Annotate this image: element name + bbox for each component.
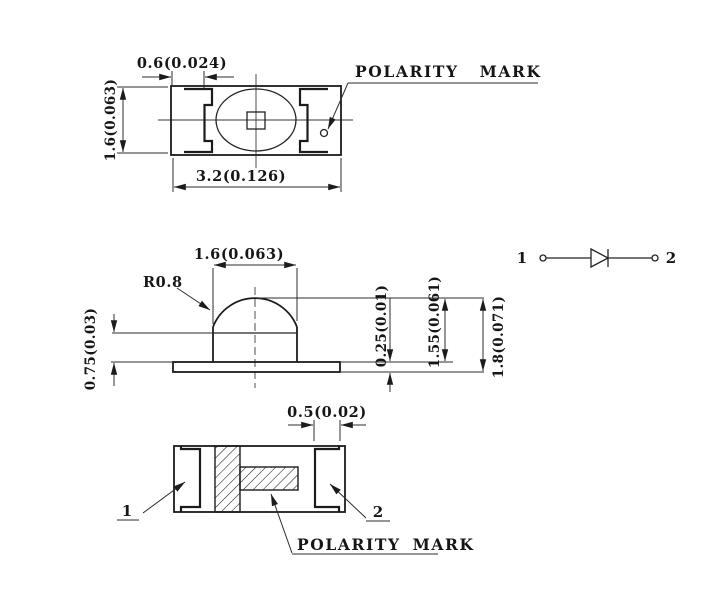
standoff-dimension: 0.75(0.03): [83, 308, 213, 391]
diode-triangle-icon: [591, 249, 608, 267]
standoff-dim-label: 0.75(0.03): [83, 308, 99, 391]
package-width-dimension: 3.2(0.126): [173, 158, 341, 192]
datasheet-page: 0.6(0.024) 1.6(0.063) 3.2(0.126) POLARIT…: [0, 0, 711, 595]
package-width-dim-label: 3.2(0.126): [196, 168, 286, 185]
bottom-polarity-label: POLARITY MARK: [297, 535, 475, 554]
symbol-pin1-label: 1: [517, 249, 527, 267]
dome-width-dim-label: 1.6(0.063): [194, 246, 284, 263]
pad-width-dimension: 0.6(0.024): [137, 55, 234, 88]
dome-width-dimension: 1.6(0.063): [194, 246, 297, 324]
bottom-view: 0.5(0.02) 1 2 POLARITY MARK: [117, 404, 475, 554]
package-height-dim-label: 1.6(0.063): [103, 79, 119, 162]
bottom-pad-width-dimension: 0.5(0.02): [287, 404, 367, 441]
dome-radius-label: R0.8: [143, 274, 183, 291]
top-view: 0.6(0.024) 1.6(0.063) 3.2(0.126) POLARIT…: [103, 55, 542, 192]
bottom-pad-width-dim-label: 0.5(0.02): [287, 404, 367, 421]
symbol-pin2-terminal: [652, 255, 658, 261]
right-electrode-pad: [300, 89, 328, 152]
bottom-pad-2: [315, 446, 339, 512]
pin2-label: 2: [373, 503, 383, 521]
bottom-pad-1: [181, 446, 200, 512]
polarity-mark-dot: [321, 130, 328, 137]
smd-led-package-drawing: 0.6(0.024) 1.6(0.063) 3.2(0.126) POLARIT…: [0, 0, 711, 595]
top-polarity-callout: POLARITY MARK: [328, 62, 542, 129]
dome-radius-callout: R0.8: [143, 274, 210, 310]
pad-width-dim-label: 0.6(0.024): [137, 55, 227, 72]
pin2-callout: 2: [330, 484, 390, 521]
side-view: 1.6(0.063) R0.8 0.75(0.03) 0.25(0.01): [83, 246, 507, 392]
total-height-dim-label: 1.8(0.071): [491, 296, 507, 379]
symbol-pin2-label: 2: [666, 249, 676, 267]
base-thickness-dim-label: 0.25(0.01): [374, 285, 390, 368]
circuit-symbol: 1 2: [517, 249, 676, 267]
body-height-dimension: 1.55(0.061): [427, 276, 445, 368]
pin1-label: 1: [122, 502, 132, 520]
polarity-mark-bar-vertical: [215, 446, 240, 512]
top-polarity-label: POLARITY MARK: [355, 62, 542, 81]
polarity-mark-bar-horizontal: [240, 467, 298, 490]
base-plate: [173, 362, 340, 372]
symbol-pin1-terminal: [540, 255, 546, 261]
base-thickness-dimension: 0.25(0.01): [374, 285, 390, 392]
total-height-dimension: 1.8(0.071): [483, 296, 507, 379]
left-electrode-pad: [184, 89, 212, 152]
body-height-dim-label: 1.55(0.061): [427, 276, 443, 368]
